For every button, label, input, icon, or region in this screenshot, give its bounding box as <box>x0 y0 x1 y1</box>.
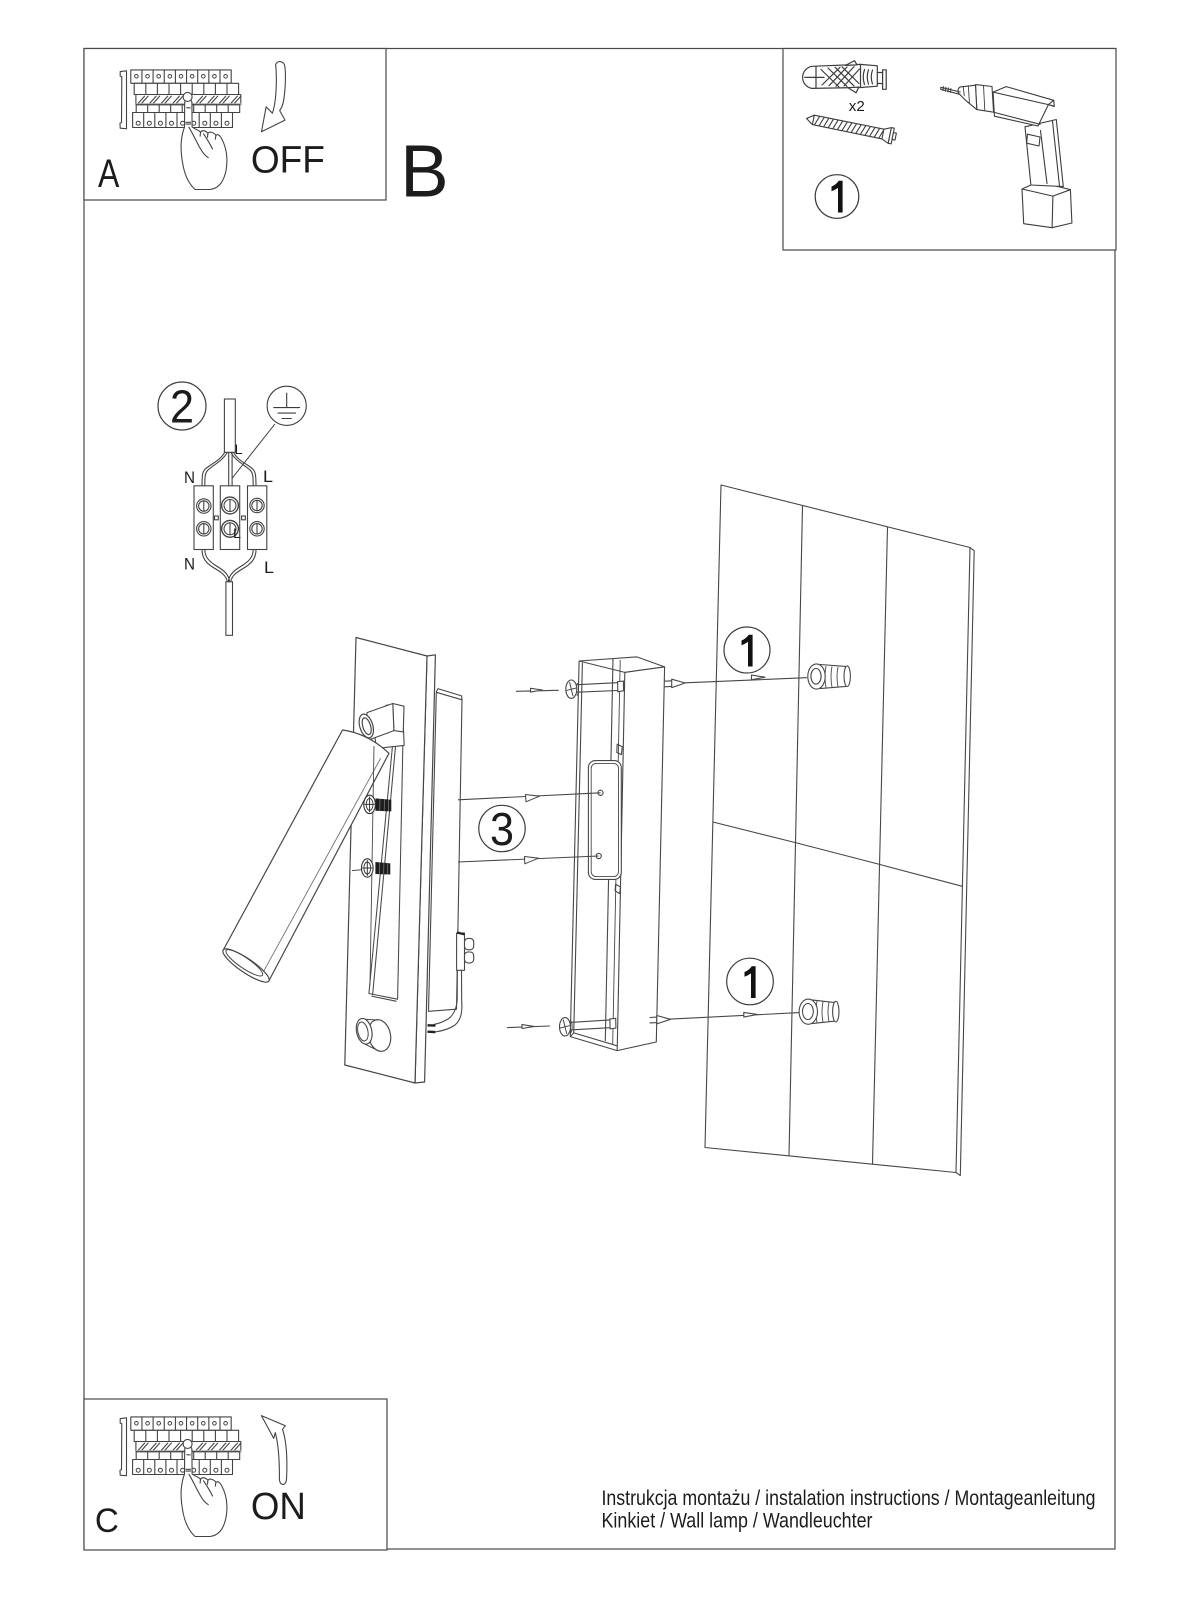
svg-text:B: B <box>400 130 448 213</box>
svg-text:ON: ON <box>251 1486 306 1528</box>
svg-text:x2: x2 <box>849 99 865 115</box>
svg-text:Instrukcja montażu / instalati: Instrukcja montażu / instalation instruc… <box>602 1487 1096 1510</box>
svg-text:2: 2 <box>170 381 194 433</box>
svg-text:N: N <box>184 556 195 574</box>
svg-text:Kinkiet / Wall lamp / Wandleuc: Kinkiet / Wall lamp / Wandleuchter <box>602 1510 873 1533</box>
svg-text:L: L <box>263 468 273 486</box>
svg-text:N: N <box>184 469 195 487</box>
svg-text:OFF: OFF <box>251 140 325 182</box>
svg-text:L: L <box>235 442 244 457</box>
svg-text:C: C <box>95 1502 119 1540</box>
svg-text:A: A <box>98 152 120 196</box>
svg-text:L: L <box>233 526 242 541</box>
svg-text:L: L <box>264 559 274 577</box>
svg-text:3: 3 <box>490 803 514 855</box>
